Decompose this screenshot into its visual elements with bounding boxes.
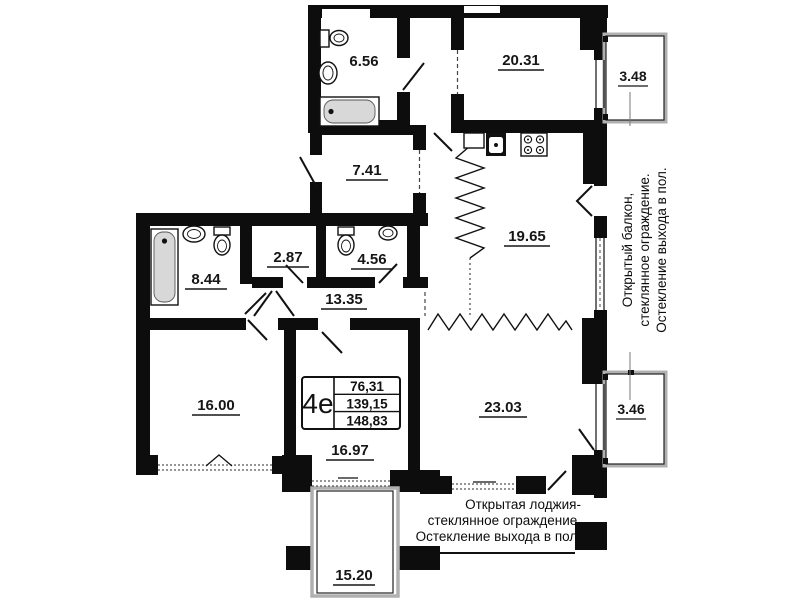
- counter-icon: [464, 133, 484, 148]
- room-label-bath-left: 8.44: [191, 271, 221, 288]
- unit-area-3: 148,83: [346, 414, 388, 429]
- loggia-note-line1: Открытая лоджия-: [465, 497, 581, 512]
- room-label-kitchen: 19.65: [508, 228, 546, 245]
- toilet-tank-icon: [338, 227, 354, 235]
- room-label-wc: 4.56: [357, 251, 386, 268]
- bathroom-top-fixtures: [319, 30, 379, 126]
- unit-area-2: 139,15: [346, 397, 388, 412]
- room-label-corridor: 13.35: [325, 291, 363, 308]
- toilet-tank-icon: [320, 30, 329, 47]
- balcony-bottom-outline: [603, 370, 666, 466]
- room-label-bath-top: 6.56: [349, 53, 378, 70]
- stove-icon: [521, 133, 547, 156]
- kitchen-fixtures: [464, 133, 547, 156]
- toilet-tank-icon: [214, 227, 230, 235]
- loggia-label: 15.20: [335, 567, 373, 584]
- zigzag-boundaries: [428, 146, 572, 330]
- balcony-note-vertical: Открытый балкон, стеклянное ограждение. …: [620, 167, 669, 332]
- balcony-note-line3: Остекление выхода в пол.: [654, 167, 669, 332]
- unit-area-1: 76,31: [350, 379, 384, 394]
- room-label-closet: 2.87: [273, 249, 302, 266]
- bathroom-left-fixtures: [151, 226, 230, 305]
- loggia-note: Открытая лоджия- стеклянное ограждение. …: [416, 497, 581, 544]
- unit-type-label: 4е: [302, 388, 333, 419]
- loggia-note-line2: стеклянное ограждение.: [428, 513, 581, 528]
- room-label-16: 16.00: [197, 397, 235, 414]
- loggia-note-line3: Остекление выхода в пол.: [416, 529, 581, 544]
- room-label-741: 7.41: [352, 162, 381, 179]
- floor-plan-svg: 6.56 20.31 3.48 7.41 19.65 8.44 2.87 4.5…: [0, 0, 799, 600]
- room-label-top-right: 20.31: [502, 52, 540, 69]
- floor-plan-page: 6.56 20.31 3.48 7.41 19.65 8.44 2.87 4.5…: [0, 0, 799, 600]
- unit-info-box: 4е 76,31 139,15 148,83: [302, 377, 400, 429]
- balcony-note-line2: стеклянное ограждение.: [637, 173, 652, 326]
- balcony-top-label: 3.48: [619, 68, 646, 84]
- balcony-bottom-label: 3.46: [617, 401, 644, 417]
- room-label-1697: 16.97: [331, 442, 369, 459]
- room-label-23: 23.03: [484, 399, 522, 416]
- window-chevron: [206, 455, 496, 482]
- balcony-note-line1: Открытый балкон,: [620, 193, 635, 308]
